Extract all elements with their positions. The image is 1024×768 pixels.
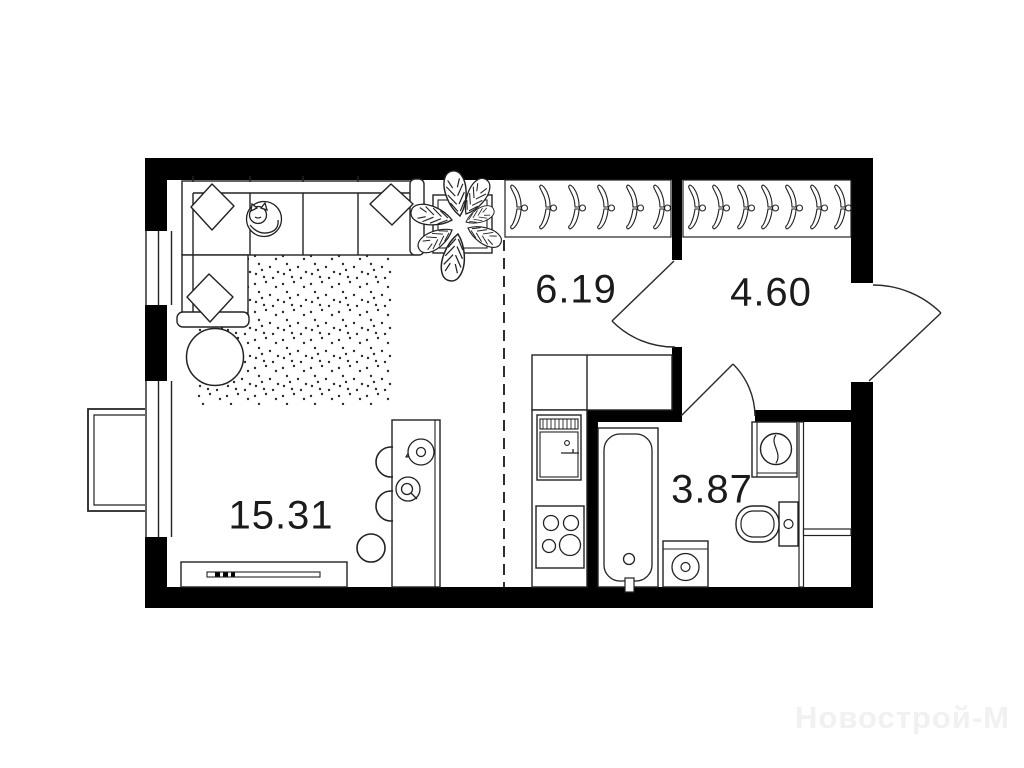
door-swing-entrance: [869, 285, 941, 381]
wall-left-top: [145, 158, 167, 231]
bathtub-icon: [598, 428, 658, 592]
wall-bathroom-left: [587, 422, 598, 587]
wall-kitchen-hall-upper: [672, 180, 682, 260]
door-swing-bathroom: [681, 364, 755, 416]
wall-right-bottom: [851, 382, 873, 608]
room-label-kitchen: 6.19: [535, 268, 617, 313]
washbasin-icon: [752, 422, 797, 477]
room-label-living-room: 15.31: [228, 494, 333, 539]
window-bottom: [146, 381, 172, 537]
floorplan-drawing: [0, 0, 1024, 768]
duct-partition: [799, 422, 851, 587]
wall-left-bottom: [145, 537, 167, 608]
coffee-table-icon: [187, 329, 244, 386]
window-top: [146, 231, 172, 305]
table-decor-cup-icon: [396, 477, 420, 501]
wall-bathroom-top-right: [755, 410, 852, 422]
door-swing-kitchen: [612, 261, 675, 347]
niche-shelf: [804, 529, 852, 536]
wall-bottom: [145, 587, 873, 608]
room-label-bathroom: 3.87: [671, 468, 753, 513]
watermark: Новострой-М: [795, 700, 1010, 736]
room-label-hallway: 4.60: [730, 271, 812, 316]
tv-console-icon: [181, 562, 347, 587]
kitchen-sink-icon: [537, 415, 581, 480]
wall-left-pier: [145, 305, 167, 381]
cooktop-icon: [536, 506, 584, 568]
chair-icon: [357, 447, 393, 562]
wall-top: [145, 158, 873, 180]
balcony-basket-icon: [88, 409, 145, 511]
wall-right-top: [851, 158, 873, 283]
floorplan-canvas: 15.31 6.19 4.60 3.87 Новострой-М: [0, 0, 1024, 768]
sleeping-cat-icon: [247, 202, 282, 237]
washing-machine-icon: [663, 541, 708, 587]
wardrobe-right: [683, 180, 852, 237]
wall-bathroom-top-left: [587, 410, 682, 422]
wardrobe-left: [505, 180, 671, 237]
